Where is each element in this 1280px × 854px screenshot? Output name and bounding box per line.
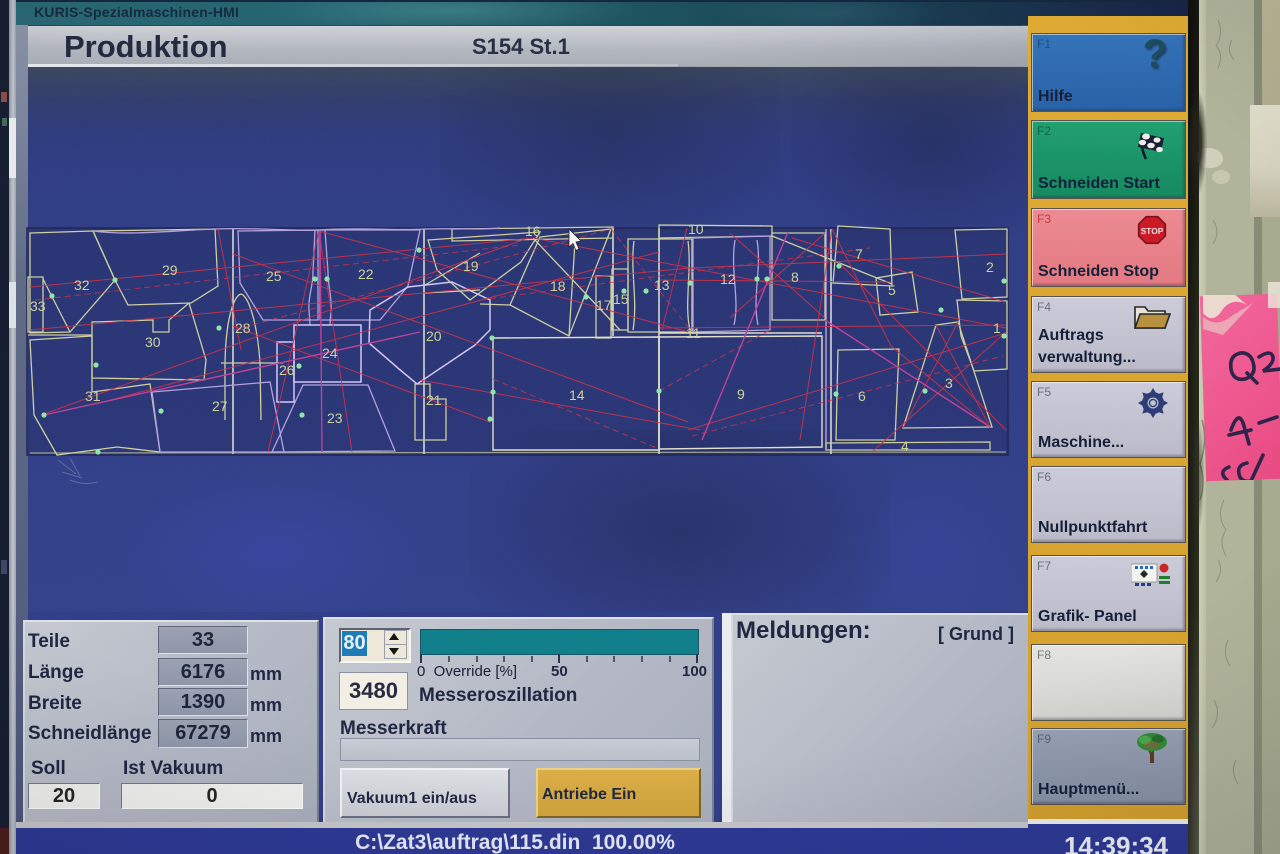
svg-text:11: 11 (686, 325, 701, 341)
svg-text:32: 32 (74, 277, 90, 293)
svg-text:12: 12 (720, 271, 736, 287)
svg-text:1: 1 (993, 320, 1001, 336)
svg-text:8: 8 (791, 269, 799, 285)
svg-text:26: 26 (279, 362, 295, 378)
svg-text:31: 31 (85, 388, 101, 404)
svg-text:4: 4 (901, 438, 909, 454)
svg-text:25: 25 (266, 268, 282, 284)
svg-text:7: 7 (855, 246, 863, 262)
svg-text:9: 9 (737, 386, 745, 402)
svg-text:6: 6 (858, 388, 866, 404)
svg-text:17: 17 (596, 297, 612, 313)
svg-text:STOP: STOP (1141, 226, 1164, 236)
svg-text:33: 33 (30, 298, 46, 314)
svg-text:15: 15 (613, 291, 629, 307)
svg-text:21: 21 (426, 392, 442, 408)
svg-text:3: 3 (945, 375, 953, 391)
svg-text:13: 13 (654, 277, 670, 293)
svg-text:30: 30 (145, 334, 161, 350)
svg-text:16: 16 (525, 223, 541, 239)
svg-text:27: 27 (212, 398, 228, 414)
svg-text:10: 10 (688, 221, 704, 237)
svg-text:14: 14 (569, 387, 585, 403)
svg-text:5: 5 (888, 282, 896, 298)
svg-text:29: 29 (162, 262, 178, 278)
svg-text:23: 23 (327, 410, 343, 426)
svg-text:28: 28 (235, 320, 251, 336)
svg-text:19: 19 (463, 258, 479, 274)
svg-text:24: 24 (322, 345, 338, 361)
svg-text:22: 22 (358, 266, 374, 282)
svg-text:2: 2 (986, 259, 994, 275)
svg-text:18: 18 (550, 278, 566, 294)
svg-text:20: 20 (426, 328, 442, 344)
